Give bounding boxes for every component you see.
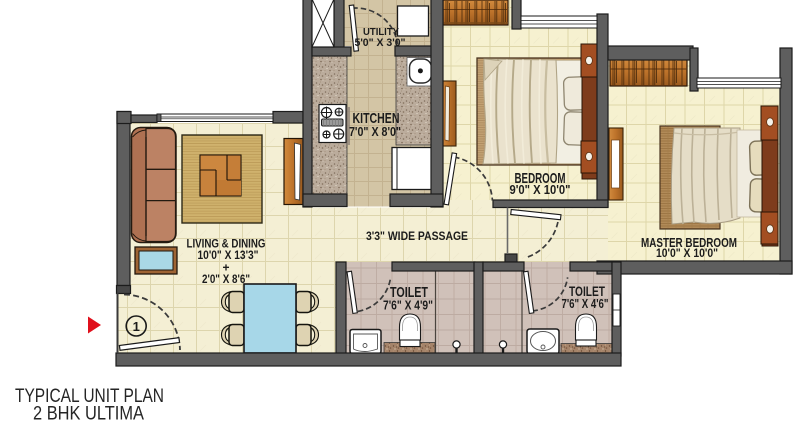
svg-text:1: 1 [133, 319, 140, 334]
svg-text:7'6" X 4'6": 7'6" X 4'6" [562, 297, 609, 311]
svg-text:7'6" X 4'9": 7'6" X 4'9" [383, 298, 433, 313]
svg-text:5'0" X 3'0": 5'0" X 3'0" [355, 37, 406, 49]
svg-text:10'0" X 10'0": 10'0" X 10'0" [656, 246, 718, 260]
svg-text:2'0" X 8'6": 2'0" X 8'6" [202, 272, 250, 286]
svg-text:3'3" WIDE PASSAGE: 3'3" WIDE PASSAGE [366, 229, 468, 243]
svg-text:9'0" X 10'0": 9'0" X 10'0" [510, 182, 571, 197]
svg-text:2 BHK ULTIMA: 2 BHK ULTIMA [33, 403, 144, 425]
svg-text:7'0" X 8'0": 7'0" X 8'0" [349, 124, 401, 139]
